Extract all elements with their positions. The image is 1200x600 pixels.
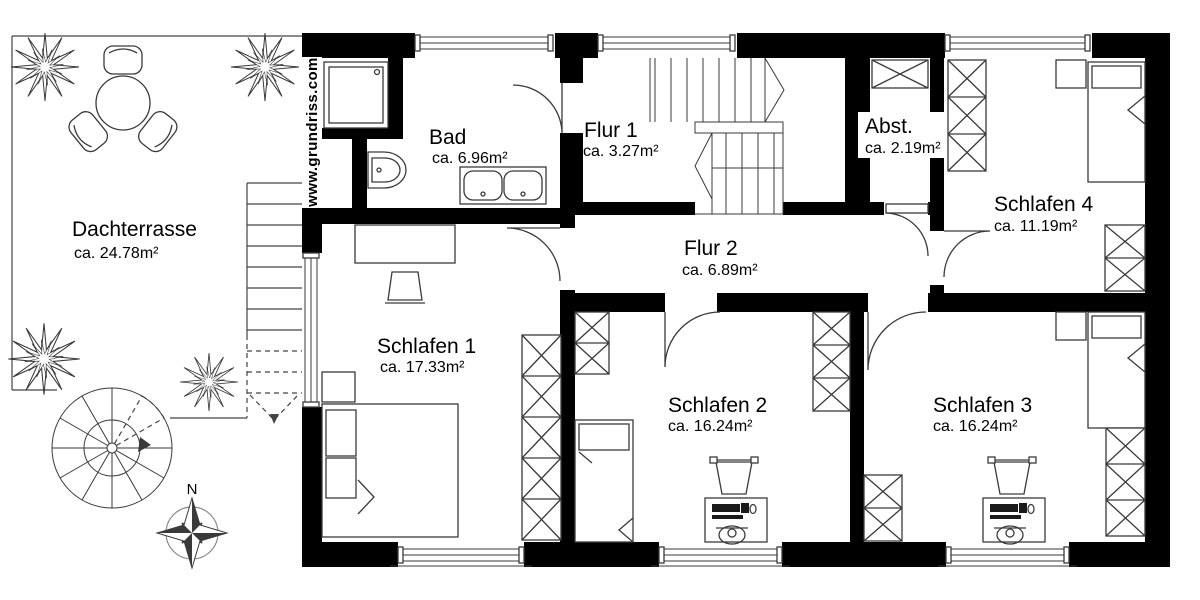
plant-icon: [180, 353, 238, 411]
terrace-chair: [104, 46, 142, 74]
nightstand: [1056, 60, 1086, 88]
room-area-schlafen-4: ca. 11.19m²: [994, 218, 1078, 235]
room-area-schlafen-3: ca. 16.24m²: [933, 418, 1018, 435]
wardrobe: [522, 335, 561, 540]
wardrobe: [575, 312, 609, 374]
bed: [575, 420, 633, 542]
computer-desk: [705, 498, 767, 544]
plant-icon: [231, 33, 299, 101]
door-schlafen-1: [507, 228, 560, 281]
compass-north-label: N: [187, 481, 198, 498]
room-area-schlafen-1: ca. 17.33m²: [380, 359, 465, 376]
room-area-dachterrasse: ca. 24.78m²: [74, 245, 159, 262]
bed: [1088, 312, 1145, 428]
room-area-schlafen-2: ca. 16.24m²: [668, 418, 753, 435]
wardrobe: [1105, 225, 1145, 291]
desk: [355, 225, 455, 263]
room-label-abstellraum: Abst.: [865, 115, 913, 138]
window: [598, 35, 735, 51]
room-label-dachterrasse: Dachterrasse: [72, 218, 197, 241]
room-area-flur-1: ca. 3.27m²: [583, 143, 659, 160]
room-label-schlafen-1: Schlafen 1: [377, 335, 476, 358]
room-label-flur-1: Flur 1: [584, 119, 638, 142]
window: [651, 547, 790, 566]
desk-chair: [385, 272, 425, 303]
door-schlafen-2: [665, 312, 720, 367]
room-label-flur-2: Flur 2: [684, 237, 738, 260]
compass-rose: N: [157, 481, 227, 568]
shelf-abstellraum: [872, 60, 928, 88]
desk-chair: [710, 457, 758, 494]
room-label-schlafen-4: Schlafen 4: [994, 193, 1094, 216]
door-schlafen-3: [868, 312, 926, 370]
wardrobe: [813, 312, 850, 411]
door-abstellraum: [886, 204, 928, 256]
watermark: www.grundriss.com: [302, 57, 322, 208]
shower: [324, 62, 388, 128]
watermark-text: www.grundriss.com: [304, 57, 321, 208]
terrace-table: [96, 76, 150, 130]
outdoor-staircase: [247, 183, 302, 424]
nightstand: [1056, 312, 1086, 340]
room-label-bad: Bad: [429, 126, 466, 149]
plant-icon: [11, 33, 79, 101]
terrace-table-set: [65, 46, 180, 155]
spiral-staircase: [52, 388, 172, 508]
room-area-flur-2: ca. 6.89m²: [682, 262, 758, 279]
floor-plan-canvas: www.grundriss.com: [0, 0, 1200, 600]
door-schlafen-4: [944, 231, 990, 277]
plant-icon: [8, 323, 79, 394]
toilet: [368, 152, 406, 188]
window: [415, 35, 553, 51]
wardrobe: [948, 60, 986, 171]
bed: [1088, 62, 1145, 182]
computer-desk: [983, 498, 1045, 544]
nightstand: [322, 372, 355, 402]
floor-plan: www.grundriss.com: [0, 0, 1200, 600]
room-label-schlafen-3: Schlafen 3: [933, 394, 1032, 417]
window: [938, 547, 1077, 566]
window: [303, 253, 319, 407]
room-label-schlafen-2: Schlafen 2: [668, 394, 767, 417]
wardrobe: [864, 475, 902, 541]
double-sink: [460, 167, 546, 204]
bed: [322, 404, 458, 537]
room-area-abstellraum: ca. 2.19m²: [865, 140, 941, 157]
door-bad: [513, 83, 562, 133]
staircase: [650, 58, 784, 214]
window: [945, 35, 1090, 51]
desk-chair: [988, 457, 1036, 494]
wardrobe: [1106, 428, 1145, 536]
window: [390, 547, 532, 566]
stair-direction-arrow: [138, 437, 151, 452]
room-area-bad: ca. 6.96m²: [432, 150, 508, 167]
